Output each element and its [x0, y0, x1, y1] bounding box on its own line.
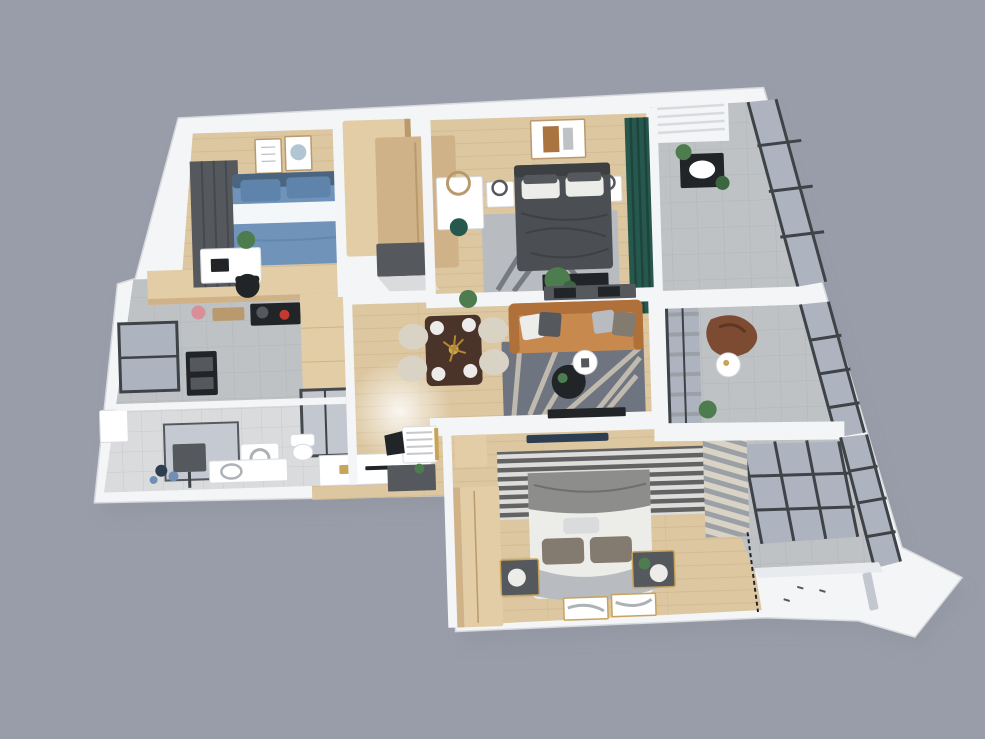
cutting-board [212, 307, 244, 321]
wardrobe-tall [452, 486, 503, 627]
bedroom2-floor [449, 422, 770, 626]
tall-cabinet-seam [301, 327, 344, 328]
leaning-art-canvases [563, 593, 656, 620]
dining-table [425, 315, 483, 387]
place-setting-3 [431, 367, 445, 381]
kitchen-hall-wall [342, 273, 358, 485]
centerpiece-flowers [443, 335, 466, 362]
floor-plan-render: const data = JSON.parse(document.getElem… [0, 0, 985, 739]
place-setting-1 [430, 321, 444, 335]
vanity-basin [221, 464, 241, 479]
bedroom-2 [450, 423, 860, 628]
wood-cabinet-tall [342, 119, 414, 257]
navy-bench [526, 433, 608, 444]
glass-wall-bottom-right [841, 434, 901, 570]
shower [164, 422, 240, 488]
bedroom2-grid-window [743, 439, 858, 544]
dark-gray-cabinet [387, 464, 436, 491]
living-right-wall-windows [648, 294, 702, 426]
place-setting-2 [462, 318, 476, 332]
desk-plant [237, 231, 256, 250]
master-left-wall [420, 120, 436, 302]
ottoman-shade [377, 275, 439, 292]
cooktop [250, 302, 301, 326]
sofa-pillow-white [519, 313, 545, 340]
glass-wall-top-right [748, 98, 826, 288]
bedroom2-left-wall [442, 432, 457, 628]
balcony-bottom-right-floor [703, 436, 875, 573]
sofa-pillow-dark [612, 311, 636, 337]
wall-accents [106, 107, 673, 638]
bathroom-laundry [99, 404, 315, 491]
cooktop-pan [279, 310, 289, 320]
nightstand-right [594, 175, 622, 202]
bedroom-1 [189, 135, 342, 300]
living-room [426, 282, 702, 432]
kitchen-cabinet-shade [148, 293, 343, 305]
cooktop-pot [256, 306, 268, 318]
shower-arm [189, 472, 190, 488]
round-side-table [716, 352, 741, 377]
slatted-ceiling-unit [652, 101, 729, 143]
washbasin-counter [675, 143, 729, 192]
walk-in-closet [342, 117, 459, 292]
nightstand2-left [500, 559, 539, 596]
master-bedroom [434, 107, 658, 322]
basin-plant-2 [715, 176, 729, 190]
dark-double-bed [514, 162, 613, 271]
wood-cabinet-small [454, 434, 487, 467]
blue-double-bed [232, 171, 341, 266]
kitchen [117, 265, 351, 462]
hallway-entry [318, 406, 666, 494]
wall-art-frames [255, 136, 312, 174]
sofa-pillow-light [591, 309, 616, 334]
bathroom-floor [101, 403, 348, 493]
model-shadow [88, 96, 970, 677]
bedroom1-floor [175, 129, 346, 302]
balcony-divider-wall-1 [656, 286, 808, 309]
place-setting-4 [463, 364, 477, 378]
bedroom1-closet-wall [333, 129, 348, 297]
beanbag [706, 314, 758, 357]
small-desk [384, 426, 439, 464]
kitchen-floor [111, 273, 346, 410]
bed2-small-pillow [563, 517, 599, 534]
laptop [211, 258, 229, 272]
glass-wall-mid-right [800, 301, 864, 439]
vanity [436, 171, 484, 236]
outer-walls [82, 82, 964, 663]
sofa-pillow-gray [538, 312, 562, 338]
radiator [99, 410, 128, 443]
kitchen-glass-partition [301, 389, 351, 456]
kitchen-tall-cabinet [300, 293, 346, 398]
microwave-door [190, 377, 213, 390]
dining-chair-left-1 [398, 323, 429, 350]
balcony-mid-right [650, 301, 864, 446]
blue-laundry-caddy [149, 464, 179, 484]
media-console [544, 284, 636, 301]
console-plant [459, 290, 478, 309]
master-plant [544, 267, 571, 294]
shower-head [172, 443, 206, 472]
bed-end-console [542, 273, 609, 293]
pink-pot [191, 305, 205, 319]
toilet [290, 434, 315, 461]
living-hall-floor [306, 295, 658, 500]
bed-pillow-left [240, 179, 281, 202]
green-plant-small [414, 463, 424, 473]
oven-door [190, 357, 213, 372]
nightstand2-right [632, 551, 675, 588]
vanity-desk [436, 176, 484, 229]
balcony-divider-wall-2 [654, 421, 844, 441]
master-balcony-wall [648, 107, 663, 299]
bed2-headboard [522, 559, 661, 603]
entry-console [319, 452, 432, 486]
balcony-mid-right-floor [662, 304, 835, 427]
balcony-top-right [650, 98, 826, 309]
bed2-pillow-right [590, 536, 633, 563]
wall-tv [548, 407, 626, 418]
white-desk [200, 247, 261, 283]
gray-ottoman [376, 242, 427, 277]
console-tray [339, 465, 355, 474]
bath-kitchen-wall [115, 397, 346, 411]
bed2-pillow-left [542, 537, 585, 564]
balcony-plant [698, 400, 717, 419]
basin-plant-1 [675, 144, 691, 160]
wood-cabinet-low [375, 135, 459, 269]
striped-rug [497, 446, 705, 520]
dining-area [396, 314, 510, 387]
floors [92, 99, 876, 637]
window-gray-curtain [190, 160, 242, 287]
black-chair [384, 431, 405, 456]
curtain-rod [652, 107, 659, 315]
tall-cabinet-seam2 [302, 361, 345, 362]
apartment-model [82, 82, 964, 663]
tan-sofa [508, 300, 644, 354]
washing-machine [241, 443, 280, 474]
bed-pillow-right [286, 176, 331, 198]
vanity-mirror [447, 172, 470, 195]
master-wall-art [531, 119, 586, 159]
tray-table-white [573, 350, 598, 375]
balcony-top-right-floor [656, 101, 798, 293]
branch-rug [501, 337, 645, 421]
coffee-table-dark [551, 364, 586, 399]
oven-microwave-stack [186, 351, 218, 396]
kitchen-window [119, 322, 179, 392]
bed-white-runner [233, 201, 340, 224]
hall-light-glow [346, 358, 453, 465]
nightstand-left [486, 180, 514, 207]
gray-curtain-stack [702, 426, 749, 537]
kitchen-upper-cabinets [147, 265, 343, 305]
teal-stool [450, 218, 469, 237]
dining-chair-left-2 [397, 355, 428, 382]
dining-chair-right-1 [478, 317, 509, 344]
tv-wall [430, 411, 664, 436]
master-pillow-left [521, 178, 560, 199]
curtain-pull-chain [748, 532, 759, 612]
master-bedroom-floor [428, 113, 652, 302]
white-bay-ledge [755, 561, 913, 632]
balcony-bottom-right [745, 433, 913, 632]
shower-glass [164, 422, 240, 480]
master-rug [481, 210, 619, 294]
bed2 [520, 469, 662, 603]
master-living-wall [426, 287, 660, 308]
dining-chair-right-2 [479, 349, 510, 376]
teal-curtains [624, 107, 659, 316]
bath-vanity [209, 459, 288, 483]
master-pillow-right [565, 176, 604, 197]
desk-area [200, 230, 262, 299]
backdrop [0, 0, 985, 739]
black-desk-chair [235, 274, 260, 299]
bed2-gray-throw [528, 469, 651, 515]
coffee-table-plant [557, 373, 567, 383]
